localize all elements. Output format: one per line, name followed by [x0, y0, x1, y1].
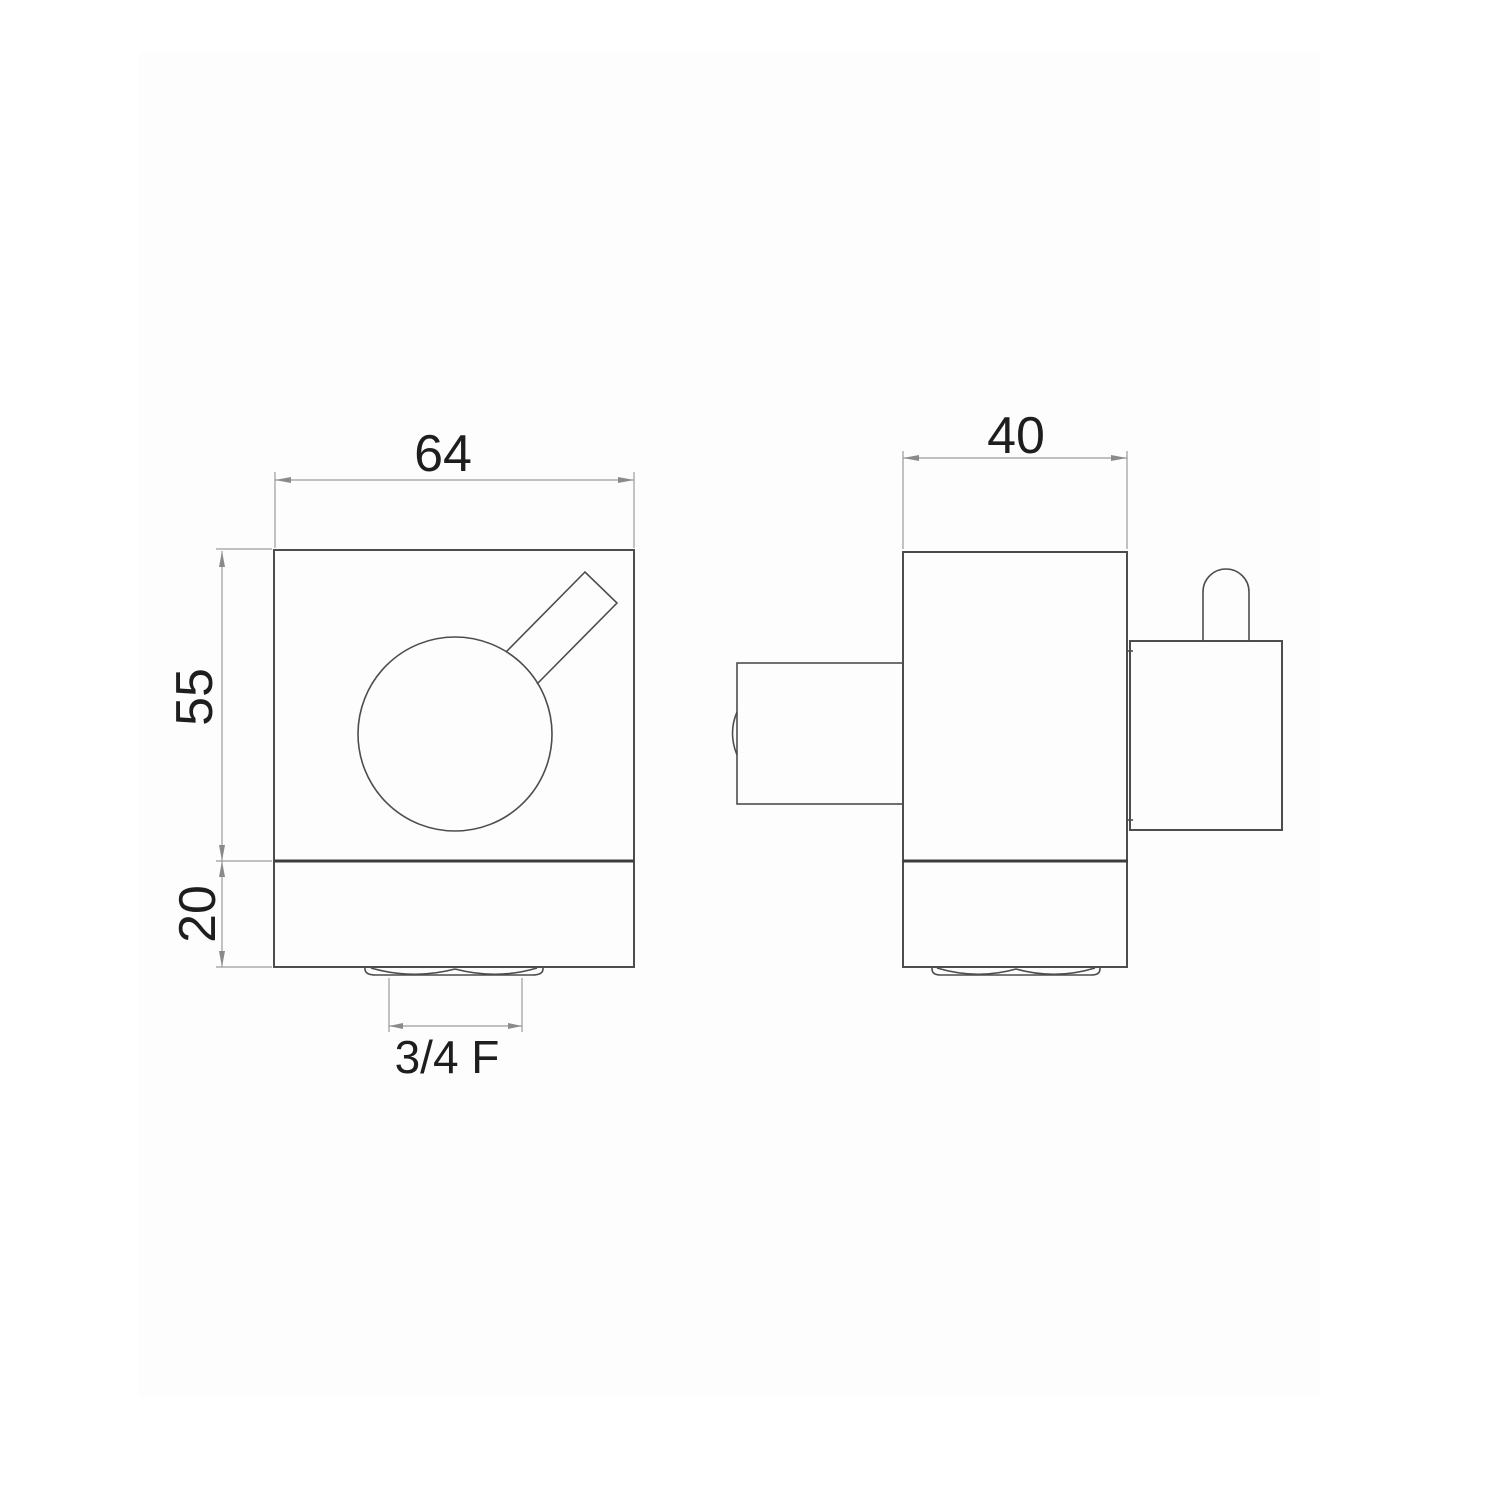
technical-drawing-canvas: 64 40 55 20 [0, 0, 1500, 1500]
dim-20-label: 20 [169, 885, 227, 943]
dim-thread-label: 3/4 F [395, 1031, 500, 1083]
dim-55-label: 55 [166, 668, 224, 726]
image-inset-area [139, 53, 1320, 1397]
dim-40-label: 40 [987, 407, 1045, 465]
drawing-page: 64 40 55 20 [0, 0, 1500, 1500]
dim-64-label: 64 [414, 425, 472, 483]
